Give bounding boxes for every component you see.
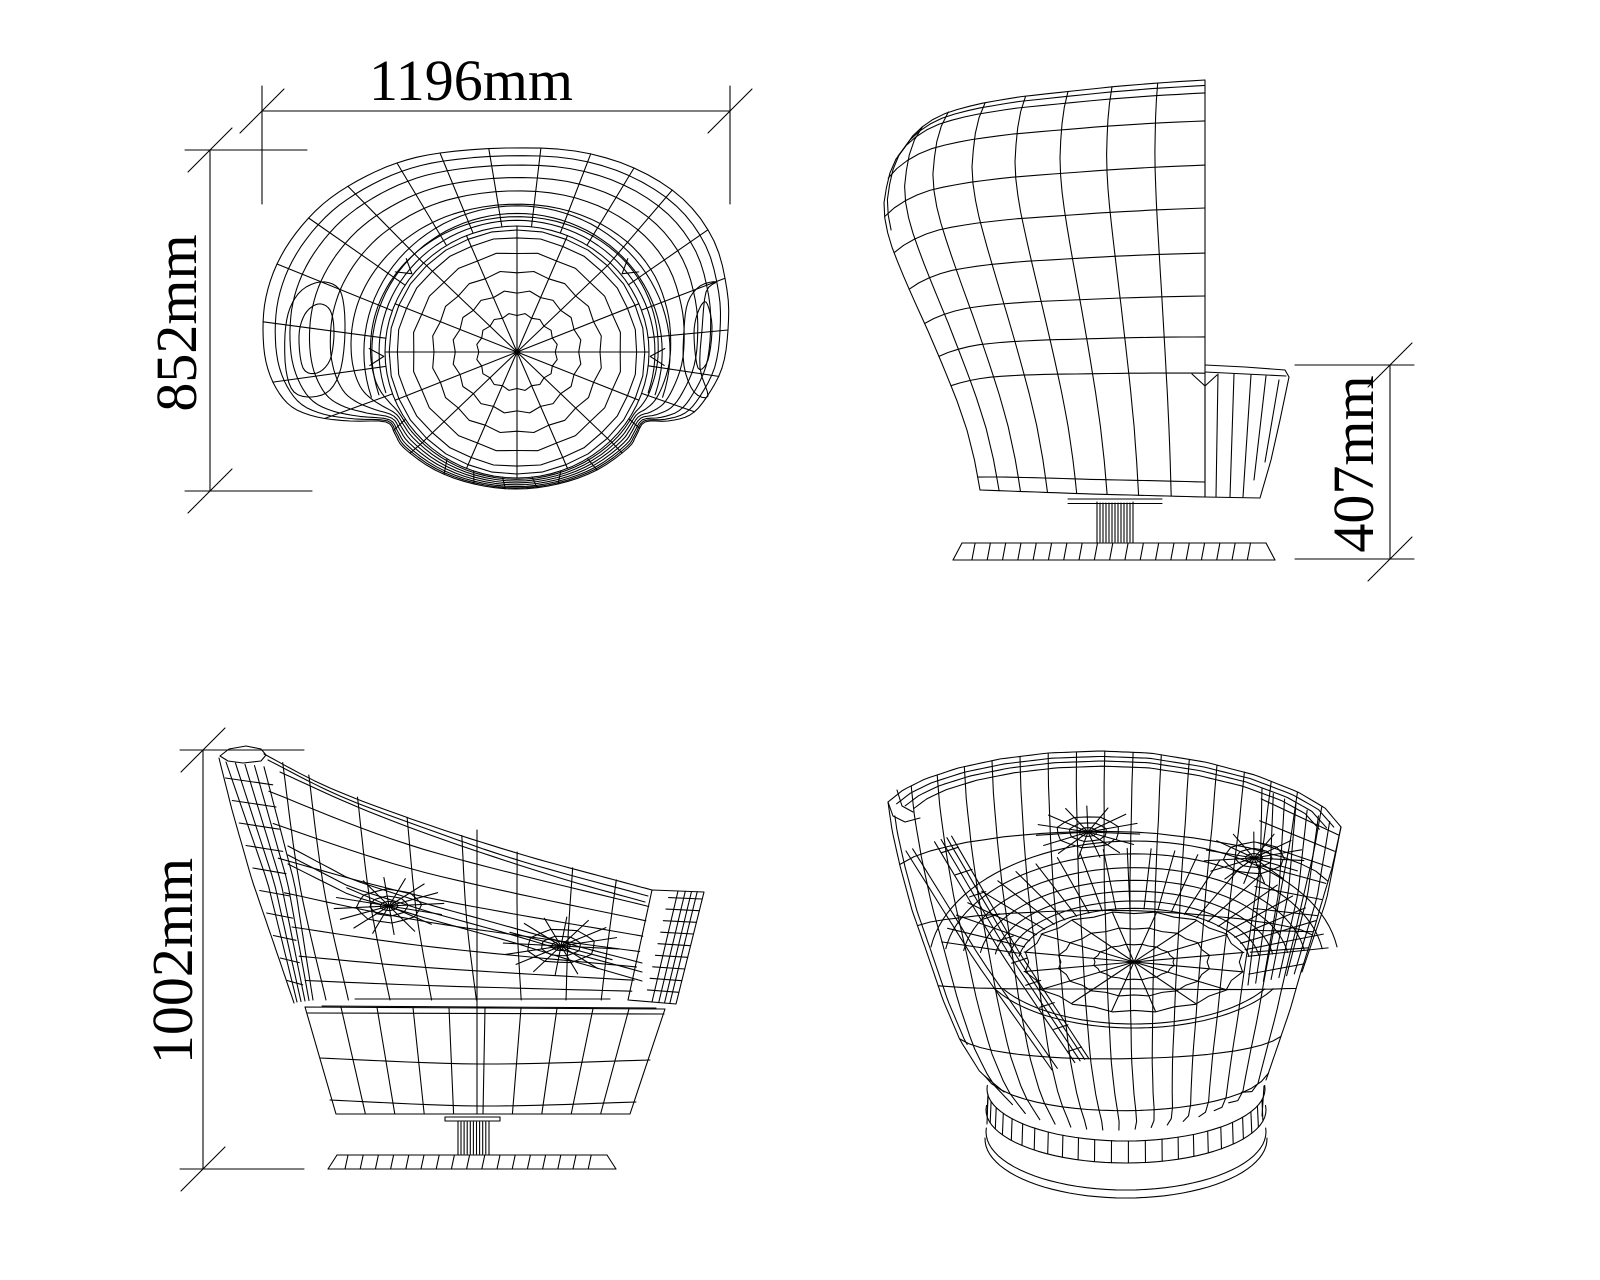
svg-text:1196mm: 1196mm bbox=[369, 48, 573, 113]
svg-text:1002mm: 1002mm bbox=[140, 858, 205, 1064]
svg-text:407mm: 407mm bbox=[1321, 375, 1386, 552]
svg-text:852mm: 852mm bbox=[144, 234, 209, 411]
